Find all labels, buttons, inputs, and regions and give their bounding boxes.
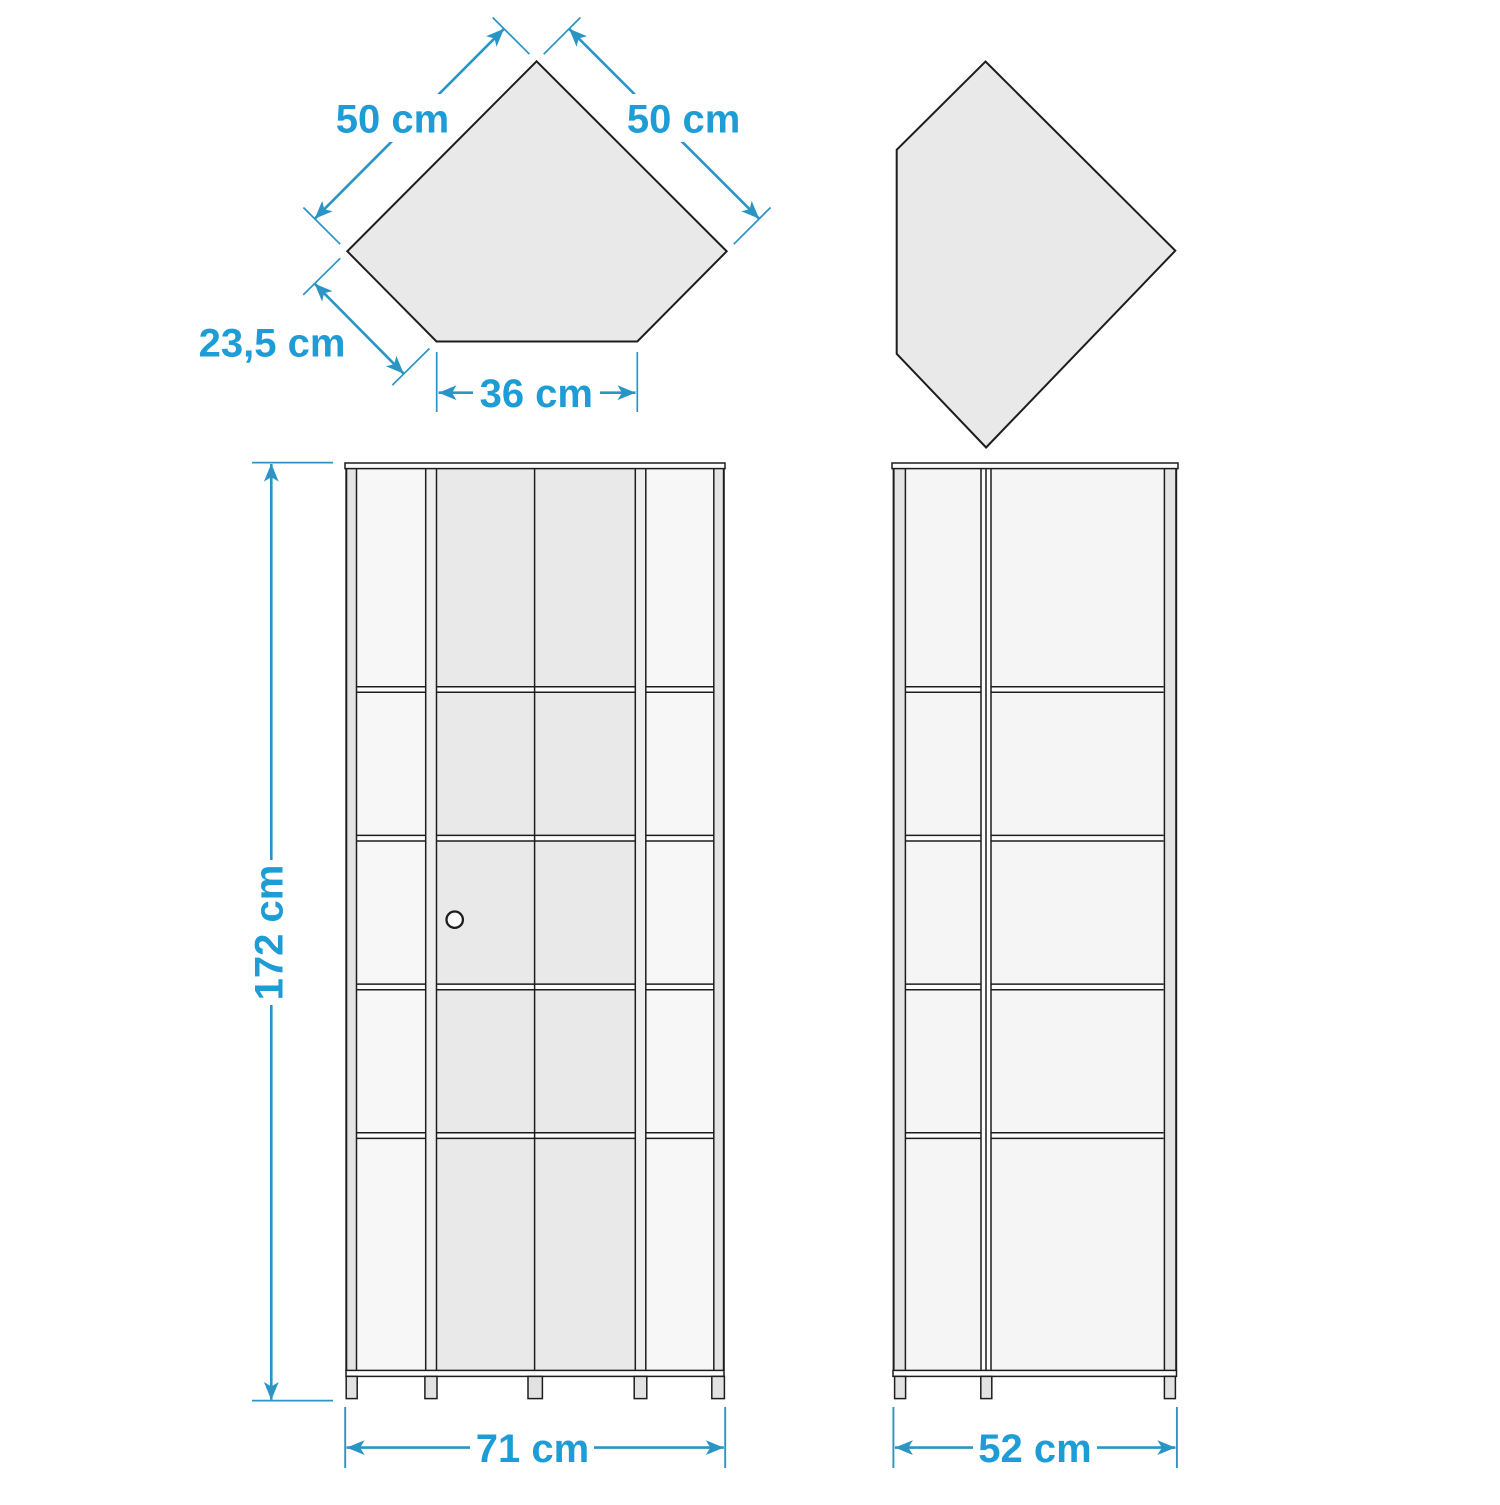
svg-text:52 cm: 52 cm xyxy=(978,1427,1091,1471)
svg-text:36 cm: 36 cm xyxy=(480,372,593,416)
svg-text:23,5 cm: 23,5 cm xyxy=(199,322,346,366)
svg-text:50 cm: 50 cm xyxy=(336,98,449,142)
svg-text:71 cm: 71 cm xyxy=(476,1427,589,1471)
svg-text:172 cm: 172 cm xyxy=(248,865,292,1001)
svg-text:50 cm: 50 cm xyxy=(627,98,740,142)
